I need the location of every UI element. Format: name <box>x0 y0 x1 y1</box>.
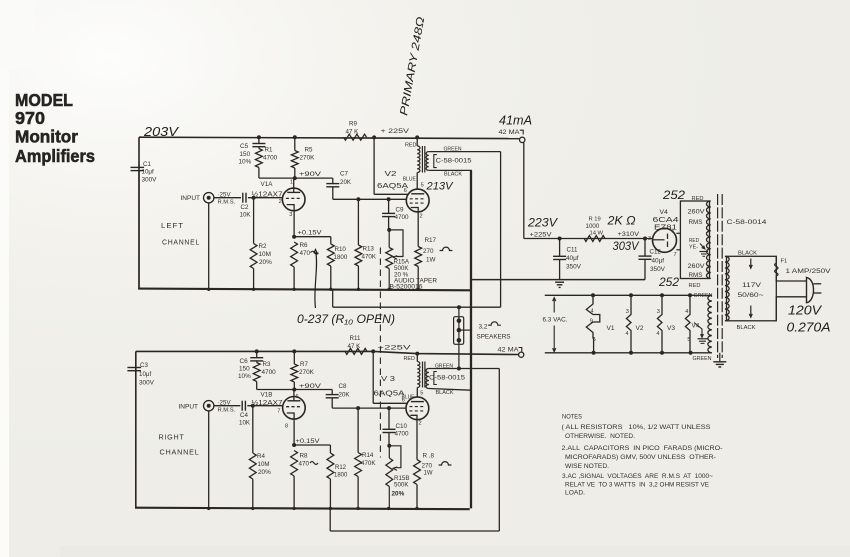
svg-text:EZ81: EZ81 <box>654 225 677 232</box>
svg-text:NOTES: NOTES <box>562 413 583 420</box>
svg-text:470K: 470K <box>362 253 377 260</box>
svg-text:+0.15V: +0.15V <box>298 230 323 237</box>
svg-text:10K: 10K <box>239 420 251 427</box>
svg-text:V2: V2 <box>636 325 644 332</box>
svg-text:R14: R14 <box>362 452 374 459</box>
svg-text:Monitor: Monitor <box>15 127 78 147</box>
svg-text:C9: C9 <box>396 207 405 214</box>
svg-text:223V: 223V <box>527 218 559 230</box>
svg-text:INPUT: INPUT <box>181 195 201 202</box>
svg-text:2: 2 <box>279 199 282 205</box>
svg-text:+225V: +225V <box>530 231 553 238</box>
svg-text:270K: 270K <box>299 369 315 376</box>
svg-text:GREEN: GREEN <box>435 364 453 370</box>
svg-text:1: 1 <box>290 180 293 186</box>
svg-text:270: 270 <box>423 248 434 255</box>
svg-text:R .8: R .8 <box>423 453 435 460</box>
svg-text:RMS: RMS <box>689 219 703 226</box>
svg-text:V3: V3 <box>667 325 675 332</box>
svg-text:R 19: R 19 <box>589 217 601 223</box>
svg-text:V2: V2 <box>385 169 397 178</box>
svg-text:LOAD.: LOAD. <box>565 490 585 497</box>
svg-text:BLACK: BLACK <box>738 251 757 257</box>
svg-text:R13: R13 <box>363 246 375 253</box>
svg-text:4: 4 <box>685 309 688 315</box>
svg-text:260V: 260V <box>688 263 706 270</box>
svg-text:41mA: 41mA <box>499 114 532 128</box>
svg-text:V1: V1 <box>607 325 615 332</box>
svg-text:9: 9 <box>590 319 593 325</box>
svg-text:213V: 213V <box>425 181 454 193</box>
svg-text:2.ALL CAPACITORS IN PICO FA: 2.ALL CAPACITORS IN PICO FARADS (MICRO- <box>562 445 723 452</box>
svg-text:1000: 1000 <box>586 223 600 230</box>
svg-text:20K: 20K <box>340 179 352 186</box>
svg-text:3: 3 <box>289 212 292 218</box>
svg-text:5: 5 <box>420 391 423 397</box>
svg-text:47 K: 47 K <box>346 129 360 136</box>
svg-text:303V: 303V <box>613 241 640 253</box>
svg-text:5: 5 <box>593 337 596 343</box>
svg-text:+0.15V: +0.15V <box>296 438 321 445</box>
svg-text:R.M.S.: R.M.S. <box>218 199 236 205</box>
svg-text:V 3: V 3 <box>381 374 395 383</box>
svg-text:RED: RED <box>405 143 417 149</box>
svg-text:C4: C4 <box>240 412 248 419</box>
svg-text:1 AMP/250V: 1 AMP/250V <box>786 268 832 275</box>
svg-text:300V: 300V <box>139 380 155 387</box>
svg-text:V1A: V1A <box>261 181 274 188</box>
svg-text:970: 970 <box>15 108 45 128</box>
svg-text:½12AX7: ½12AX7 <box>252 398 283 407</box>
svg-text:BLUE: BLUE <box>403 176 416 182</box>
svg-text:3.AC ,SIGNAL VOLTAGES ARE R: 3.AC ,SIGNAL VOLTAGES ARE R.M.S AT 1000~ <box>562 473 713 480</box>
svg-text:7: 7 <box>277 408 280 414</box>
svg-text:R12: R12 <box>335 465 347 471</box>
svg-text:BLACK: BLACK <box>436 390 454 396</box>
svg-text:150: 150 <box>240 151 251 158</box>
svg-text:R4: R4 <box>257 453 265 460</box>
svg-text:RMS: RMS <box>689 272 703 279</box>
svg-text:GREEN: GREEN <box>444 147 462 153</box>
svg-text:40μf: 40μf <box>652 258 665 265</box>
svg-text:C8: C8 <box>339 383 347 390</box>
svg-text:10μf: 10μf <box>139 371 151 378</box>
svg-text:RED: RED <box>689 238 699 244</box>
svg-text:RED: RED <box>404 356 416 362</box>
svg-text:+ 225V: + 225V <box>381 128 410 135</box>
svg-text:1800: 1800 <box>334 473 348 479</box>
svg-text:10%: 10% <box>238 373 251 380</box>
svg-text:C11: C11 <box>567 247 578 254</box>
svg-text:1W: 1W <box>426 257 436 264</box>
svg-text:50/60~: 50/60~ <box>738 292 764 299</box>
svg-text:117V: 117V <box>742 282 762 289</box>
svg-text:INPUT: INPUT <box>179 403 199 410</box>
svg-text:R5: R5 <box>305 147 313 154</box>
svg-text:270: 270 <box>422 463 433 470</box>
svg-text:270K: 270K <box>300 154 316 161</box>
svg-text:4: 4 <box>591 309 594 315</box>
svg-text:260V: 260V <box>688 209 706 216</box>
svg-text:14 W: 14 W <box>590 231 604 237</box>
svg-text:BLACK: BLACK <box>444 171 462 177</box>
svg-text:7: 7 <box>674 252 677 258</box>
svg-text:CHANNEL: CHANNEL <box>160 448 200 457</box>
svg-text:252: 252 <box>658 277 680 289</box>
svg-text:6.3 VAC.: 6.3 VAC. <box>543 316 568 323</box>
svg-text:4700: 4700 <box>263 155 278 162</box>
svg-text:YE-: YE- <box>689 245 698 251</box>
svg-text:6AQ5A: 6AQ5A <box>374 388 405 397</box>
svg-text:BLUE: BLUE <box>402 395 415 401</box>
svg-text:0.270A: 0.270A <box>787 320 831 335</box>
svg-text:120V: 120V <box>788 303 822 318</box>
svg-text:F1: F1 <box>781 258 788 264</box>
svg-text:C1: C1 <box>143 161 151 168</box>
svg-text:10M: 10M <box>259 251 271 258</box>
svg-text:4: 4 <box>656 331 659 337</box>
svg-text:R3: R3 <box>263 361 271 368</box>
svg-text:RED: RED <box>689 283 701 289</box>
svg-text:20%: 20% <box>258 469 271 476</box>
svg-text:20K: 20K <box>339 391 351 398</box>
svg-text:300V: 300V <box>142 177 158 184</box>
svg-text:1W: 1W <box>424 471 433 477</box>
svg-text:470K: 470K <box>361 460 376 467</box>
svg-text:C-58-0015: C-58-0015 <box>429 376 466 382</box>
svg-text:R1: R1 <box>265 147 273 154</box>
svg-text:6: 6 <box>296 394 299 400</box>
svg-text:470: 470 <box>299 460 310 467</box>
svg-text:GREEN: GREEN <box>694 293 713 299</box>
svg-text:R8: R8 <box>300 453 309 460</box>
svg-text:470: 470 <box>300 250 311 257</box>
svg-text:20%: 20% <box>259 259 272 266</box>
svg-text:LEFT: LEFT <box>161 221 184 230</box>
svg-text:4700: 4700 <box>395 214 410 221</box>
svg-text:252: 252 <box>662 190 686 202</box>
svg-text:C3: C3 <box>140 362 148 369</box>
svg-text:BLACK: BLACK <box>737 325 756 331</box>
svg-text:R2: R2 <box>259 243 267 250</box>
svg-text:CHANNEL: CHANNEL <box>162 238 200 247</box>
svg-text:½12AX7: ½12AX7 <box>252 190 283 199</box>
svg-text:R7: R7 <box>300 361 308 368</box>
svg-text:2: 2 <box>420 214 423 220</box>
svg-text:R17: R17 <box>425 237 437 244</box>
svg-text:( ALL RESISTORS 10%, 1/2 WAT: ( ALL RESISTORS 10%, 1/2 WATT UNLESS <box>562 424 712 431</box>
svg-text:10μf: 10μf <box>142 169 154 176</box>
svg-text:1800: 1800 <box>334 254 348 261</box>
svg-text:3: 3 <box>657 309 660 315</box>
svg-text:42 MA: 42 MA <box>498 346 520 353</box>
svg-text:20%: 20% <box>392 491 405 498</box>
svg-text:3: 3 <box>648 236 651 242</box>
svg-text:R10: R10 <box>335 246 347 253</box>
svg-text:5: 5 <box>421 183 424 189</box>
svg-text:+90V: +90V <box>299 171 322 178</box>
svg-text:20 %: 20 % <box>394 271 409 278</box>
svg-text:350V: 350V <box>566 264 582 271</box>
svg-text:OTHERWISE. NOTED.: OTHERWISE. NOTED. <box>565 433 635 440</box>
svg-text:R6: R6 <box>300 242 309 249</box>
svg-text:R11: R11 <box>350 335 361 342</box>
svg-text:C6: C6 <box>240 358 249 365</box>
svg-text:8: 8 <box>285 424 288 430</box>
svg-text:C-58-0014: C-58-0014 <box>727 219 768 226</box>
svg-text:SPEAKERS: SPEAKERS <box>477 334 511 341</box>
svg-text:3,2: 3,2 <box>479 323 488 330</box>
svg-text:RIGHT: RIGHT <box>159 433 185 442</box>
svg-text:150: 150 <box>239 366 250 373</box>
svg-text:+225V: +225V <box>378 345 412 352</box>
svg-text:GREEN: GREEN <box>693 356 712 362</box>
svg-text:5: 5 <box>687 337 690 343</box>
svg-text:3: 3 <box>626 309 629 315</box>
svg-text:C7: C7 <box>340 171 348 178</box>
svg-text:C10: C10 <box>396 423 408 430</box>
svg-text:0-237 (R₁₀ OPEN): 0-237 (R₁₀ OPEN) <box>297 314 395 326</box>
svg-text:MICROFARADS) GMV, 500V UNLESS: MICROFARADS) GMV, 500V UNLESS OTHER- <box>565 454 716 461</box>
svg-text:10M: 10M <box>258 461 270 468</box>
svg-text:6CA4: 6CA4 <box>653 215 679 224</box>
svg-text:47 K: 47 K <box>348 343 362 350</box>
svg-text:C-58-0015: C-58-0015 <box>436 158 473 164</box>
svg-text:500K: 500K <box>394 481 409 488</box>
svg-text:2K Ω: 2K Ω <box>606 214 635 228</box>
svg-text:10K: 10K <box>240 212 252 219</box>
svg-text:4700: 4700 <box>395 431 410 438</box>
svg-text:WISE NOTED.: WISE NOTED. <box>565 463 609 470</box>
svg-text:2: 2 <box>419 421 422 427</box>
svg-text:RELAT VE TO 3 WATTS IN 3,2: RELAT VE TO 3 WATTS IN 3,2 OHM RESIST VE <box>565 481 710 488</box>
svg-text:+310V: +310V <box>618 231 640 238</box>
svg-text:4700: 4700 <box>262 369 277 376</box>
svg-text:R9: R9 <box>349 121 357 128</box>
svg-text:C5: C5 <box>240 143 249 150</box>
svg-text:RED: RED <box>692 196 704 202</box>
svg-text:40μf: 40μf <box>566 255 579 262</box>
svg-text:R.M.S.: R.M.S. <box>218 407 236 413</box>
svg-text:4: 4 <box>625 331 628 337</box>
svg-text:MODEL: MODEL <box>15 90 73 110</box>
svg-text:C2: C2 <box>241 204 249 211</box>
svg-text:+90V: +90V <box>299 383 322 390</box>
svg-text:350V: 350V <box>650 266 666 273</box>
svg-text:42 MA: 42 MA <box>499 129 521 136</box>
svg-text:Amplifiers: Amplifiers <box>15 146 95 166</box>
svg-text:10%: 10% <box>239 159 252 166</box>
